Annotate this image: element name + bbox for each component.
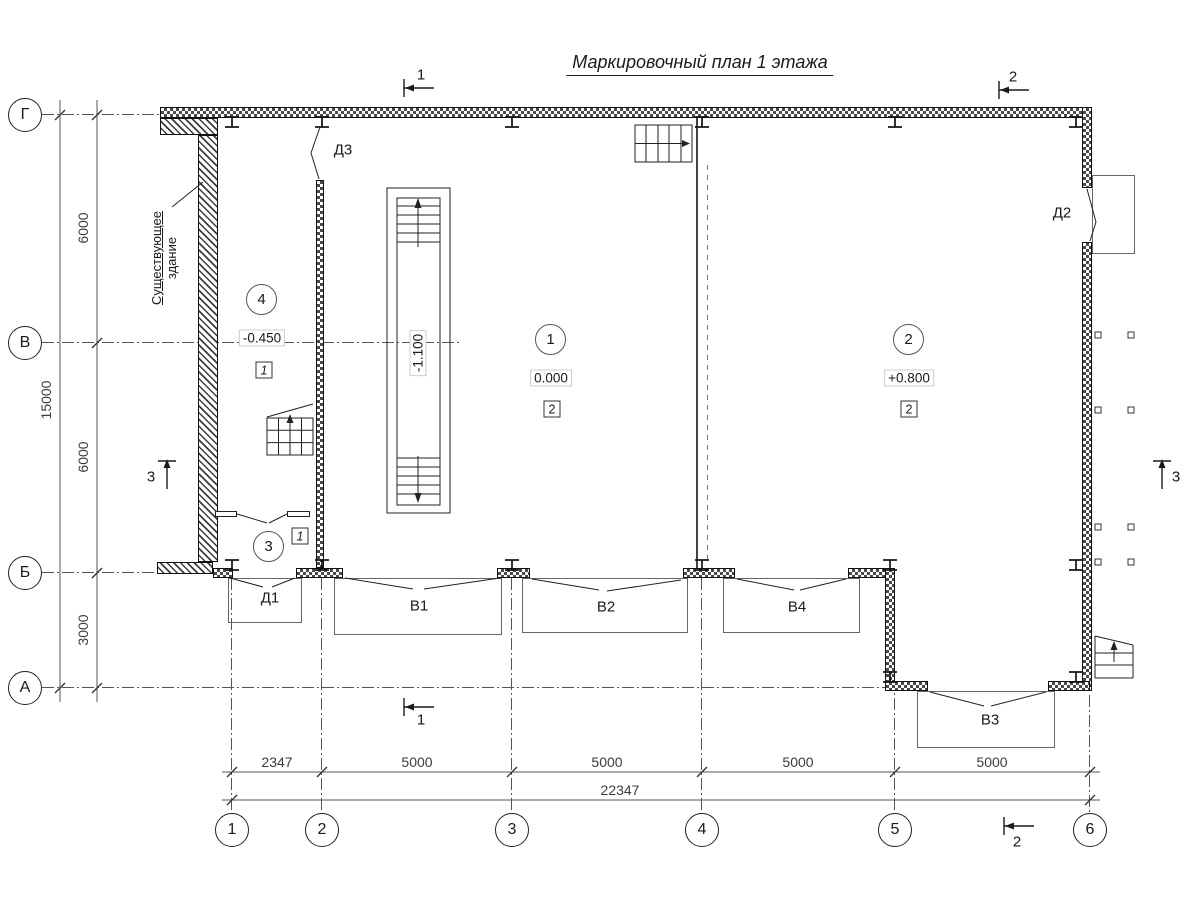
axis-bubble-4: 4 — [685, 813, 719, 847]
wall-b-pier-4 — [683, 568, 735, 578]
dim-left-3000: 3000 — [75, 612, 91, 647]
axis-bubble-3: 3 — [495, 813, 529, 847]
dim-bottom-5000-b: 5000 — [589, 754, 624, 770]
axis-label-a: А — [20, 679, 31, 697]
section-2-bottom-label: 2 — [1013, 834, 1021, 851]
room3-jamb-left — [215, 511, 237, 517]
room-1-floor-type: 2 — [544, 401, 561, 418]
label-door-d1: Д1 — [261, 590, 280, 607]
room-1-bubble: 1 — [535, 324, 566, 355]
axis-line-6 — [1089, 695, 1090, 813]
room-3-floor-type: 1 — [292, 528, 309, 545]
partition-axis-2 — [316, 180, 324, 568]
axis-label-3: 3 — [508, 821, 517, 839]
room-2-bubble: 2 — [893, 324, 924, 355]
dim-left-6000-a: 6000 — [75, 210, 91, 245]
axis-label-2: 2 — [318, 821, 327, 839]
label-window-v1: В1 — [410, 598, 428, 615]
dim-bottom-5000-c: 5000 — [780, 754, 815, 770]
page-title: Маркировочный план 1 этажа — [566, 52, 833, 76]
room-2-floor-type: 2 — [901, 401, 918, 418]
dim-bottom-total-22347: 22347 — [599, 782, 642, 798]
dim-left-total-15000: 15000 — [38, 379, 54, 422]
axis-label-5: 5 — [891, 821, 900, 839]
label-door-d3: Д3 — [334, 142, 353, 159]
axis-bubble-v: В — [8, 326, 42, 360]
axis-line-2 — [321, 578, 322, 813]
axis-line-3 — [511, 578, 512, 813]
axis-label-g: Г — [21, 106, 30, 124]
label-door-d2: Д2 — [1053, 205, 1072, 222]
axis-line-a — [42, 687, 885, 688]
wall-right-upper — [1082, 107, 1092, 188]
wall-b-pier-3 — [497, 568, 530, 578]
axis-bubble-a: А — [8, 671, 42, 705]
existing-wall-top — [160, 118, 218, 135]
wall-b-pier-1 — [213, 568, 233, 578]
axis-bubble-g: Г — [8, 98, 42, 132]
axis-bubble-2: 2 — [305, 813, 339, 847]
joint-dashed-line — [707, 165, 708, 561]
axis-bubble-5: 5 — [878, 813, 912, 847]
wall-a-pier-2 — [1048, 681, 1090, 691]
floor-plan-sheet: Маркировочный план 1 этажа — [0, 0, 1200, 900]
axis-bubble-6: 6 — [1073, 813, 1107, 847]
dim-left-6000-b: 6000 — [75, 439, 91, 474]
label-window-v3: В3 — [981, 712, 999, 729]
pit-level: -1.100 — [410, 330, 427, 376]
dim-bottom-5000-a: 5000 — [399, 754, 434, 770]
room-3-number: 3 — [264, 538, 272, 555]
room-1-number: 1 — [546, 331, 554, 348]
dim-bottom-2347: 2347 — [259, 754, 294, 770]
label-window-v2: В2 — [597, 599, 615, 616]
room-2-number: 2 — [904, 331, 912, 348]
axis-line-g — [42, 114, 162, 115]
axis-bubble-b: Б — [8, 556, 42, 590]
section-1-top-label: 1 — [417, 67, 425, 84]
existing-building-note: Существующее здание — [149, 211, 179, 305]
axis-bubble-1: 1 — [215, 813, 249, 847]
room-1-level: 0.000 — [530, 370, 572, 387]
axis-label-6: 6 — [1086, 821, 1095, 839]
room-3-bubble: 3 — [253, 531, 284, 562]
axis-label-1: 1 — [228, 821, 237, 839]
wall-right-lower — [1082, 242, 1092, 691]
label-window-v4: В4 — [788, 599, 806, 616]
dim-bottom-5000-d: 5000 — [974, 754, 1009, 770]
wall-a-pier-1 — [885, 681, 928, 691]
porch-d2 — [1092, 175, 1135, 254]
existing-wall-bottom — [157, 562, 213, 574]
existing-building-note-line1: Существующее — [149, 211, 164, 305]
axis-label-v: В — [20, 334, 31, 352]
room-4-floor-type: 1 — [256, 362, 273, 379]
partition-axis-4 — [696, 118, 698, 568]
section-3-left-label: 3 — [147, 469, 155, 486]
axis-label-b: Б — [20, 564, 31, 582]
wall-top — [160, 107, 1090, 118]
axis-line-b — [42, 572, 158, 573]
room3-jamb-right — [287, 511, 310, 517]
axis-line-4 — [701, 578, 702, 813]
section-2-top-label: 2 — [1009, 69, 1017, 86]
room-2-level: +0.800 — [884, 370, 934, 387]
wall-annex-west — [885, 568, 895, 691]
wall-b-pier-2 — [296, 568, 343, 578]
section-3-right-label: 3 — [1172, 469, 1180, 486]
existing-building-note-line2: здание — [164, 211, 179, 305]
section-1-bottom-label: 1 — [417, 712, 425, 729]
axis-label-4: 4 — [698, 821, 707, 839]
room-4-level: -0.450 — [239, 330, 285, 347]
room-4-bubble: 4 — [246, 284, 277, 315]
existing-wall-west — [198, 135, 218, 562]
room-4-number: 4 — [257, 291, 265, 308]
